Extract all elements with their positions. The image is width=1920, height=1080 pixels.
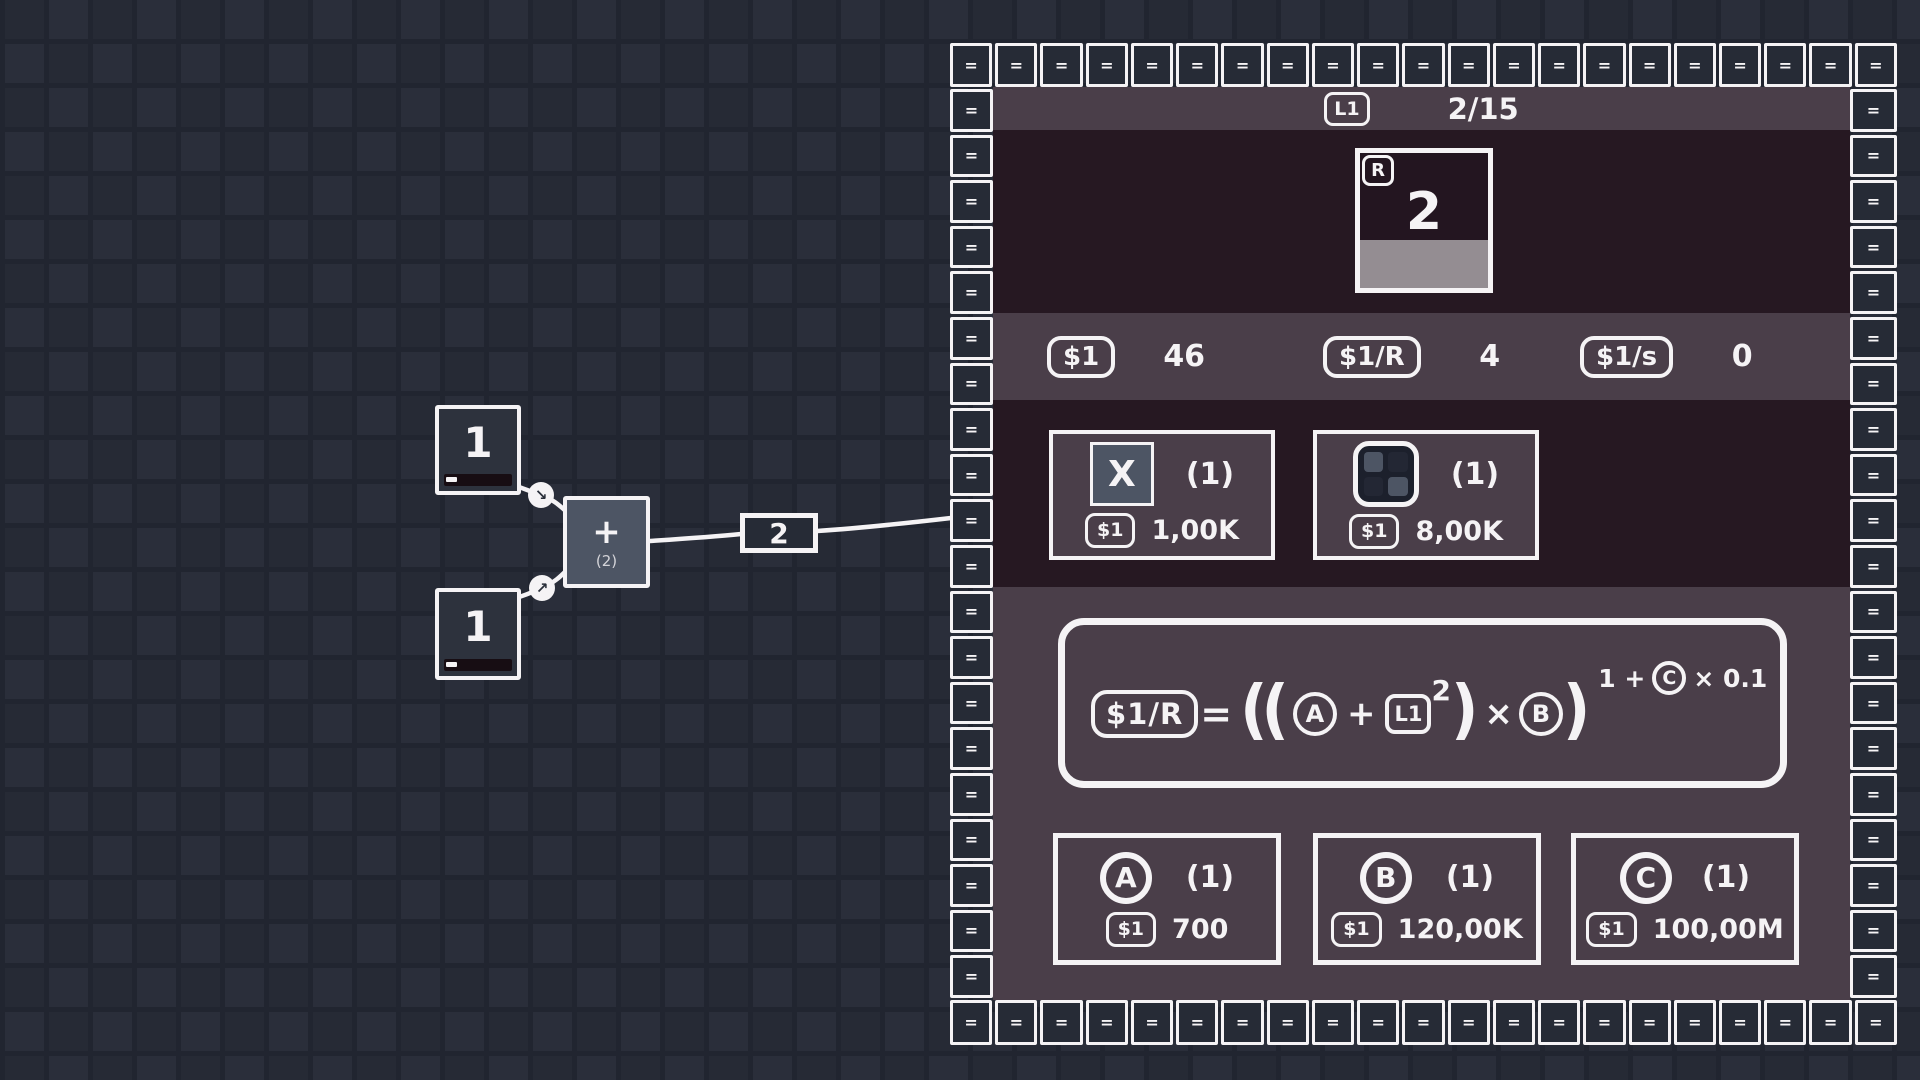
panel-border-tile: = [1850, 363, 1897, 406]
panel-border-tile: = [1850, 955, 1897, 998]
grid-cell [1388, 477, 1408, 497]
panel-border-tile: = [950, 910, 993, 953]
formula-var-b: B [1519, 692, 1563, 736]
panel-border-tile: = [1448, 1000, 1490, 1045]
panel-border-tile: = [1850, 89, 1897, 132]
panel-border-tile: = [1764, 1000, 1806, 1045]
input-node-1-progress-fill [446, 477, 457, 482]
upgrade-panel: ===================== ==================… [950, 43, 1897, 1045]
panel-border-tile: = [950, 317, 993, 360]
input-node-1-progress-bar [444, 474, 512, 486]
panel-border-tile: = [950, 727, 993, 770]
upgrade-grid-count: (1) [1451, 457, 1499, 492]
input-node-2[interactable]: 1 [435, 588, 521, 680]
panel-border-tile: = [1402, 43, 1444, 87]
buy-a-count: (1) [1186, 860, 1234, 895]
buy-a-currency-badge: $1 [1106, 912, 1156, 947]
upgrade-x-button[interactable]: X (1) $1 1,00K [1049, 430, 1275, 560]
upgrade-grid-currency-badge: $1 [1349, 514, 1399, 549]
panel-border-tile: = [1176, 1000, 1218, 1045]
panel-border-tile: = [995, 43, 1037, 87]
formula-close-paren-1: ) [1451, 677, 1478, 750]
panel-border-tile: = [950, 454, 993, 497]
panel-border-tile: = [1086, 43, 1128, 87]
panel-border-tile: = [950, 363, 993, 406]
input-node-2-progress-bar [444, 659, 512, 671]
upgrade-x-count: (1) [1186, 457, 1234, 492]
wire-operator-to-label [650, 534, 741, 541]
panel-border-tile: = [995, 1000, 1037, 1045]
x-icon: X [1090, 442, 1154, 506]
panel-border-tile: = [950, 43, 992, 87]
grid-cell [1364, 477, 1384, 497]
formula-exponent-group: 1 + C × 0.1 [1598, 661, 1767, 695]
formula-times: × [1484, 694, 1513, 734]
buy-c-currency-badge: $1 [1586, 912, 1636, 947]
resource-card[interactable]: R 2 [1355, 148, 1493, 293]
panel-border-tile: = [1583, 43, 1625, 87]
grid-cell [1388, 452, 1408, 472]
panel-border-tile: = [1131, 43, 1173, 87]
panel-border-tile: = [1040, 43, 1082, 87]
input-node-1-value: 1 [463, 418, 492, 483]
panel-border-tile: = [1850, 910, 1897, 953]
panel-border-tile: = [1448, 43, 1490, 87]
level-progress: 2/15 [1448, 92, 1519, 126]
buy-c-cost: 100,00M [1653, 914, 1784, 945]
buy-b-currency-badge: $1 [1331, 912, 1381, 947]
panel-border-tile: = [950, 773, 993, 816]
panel-border-tile: = [1674, 1000, 1716, 1045]
panel-border-tile: = [1850, 317, 1897, 360]
operator-annotation: (2) [596, 552, 617, 570]
panel-border-tile: = [1809, 43, 1851, 87]
formula-panel: $1/R = (( A + L1 2 ) × B ) 1 + C × 0.1 [1058, 618, 1787, 788]
input-node-2-progress-fill [446, 662, 457, 667]
panel-border-tile: = [950, 682, 993, 725]
panel-border-tile: = [1267, 1000, 1309, 1045]
formula-equals: = [1200, 692, 1232, 736]
grid-cell [1364, 452, 1384, 472]
upgrade-x-currency-badge: $1 [1085, 513, 1135, 548]
panel-border-tile: = [1493, 43, 1535, 87]
panel-border-tile: = [1357, 1000, 1399, 1045]
money-per-second-value: 0 [1711, 339, 1773, 374]
money-unit-badge: $1 [1047, 336, 1115, 378]
input-node-1[interactable]: 1 [435, 405, 521, 495]
panel-border-tile: = [1583, 1000, 1625, 1045]
game-canvas: { "colors":{ "background":"#242834", "pa… [0, 0, 1920, 1080]
panel-border-tile: = [950, 545, 993, 588]
panel-border-tile: = [1221, 1000, 1263, 1045]
buy-b-cost: 120,00K [1398, 914, 1523, 945]
arrow-down-right-icon[interactable]: ↘ [528, 482, 554, 508]
a-circle-icon: A [1100, 852, 1152, 904]
formula-plus: + [1347, 694, 1376, 734]
panel-border-tile: = [950, 408, 993, 451]
b-circle-icon: B [1360, 852, 1412, 904]
panel-border-tile: = [950, 955, 993, 998]
upgrade-grid-button[interactable]: (1) $1 8,00K [1313, 430, 1539, 560]
panel-border-tile: = [1850, 636, 1897, 679]
buy-a-cost: 700 [1172, 914, 1228, 945]
panel-border-tile: = [950, 89, 993, 132]
wire-label-to-panel [817, 518, 951, 531]
buy-b-button[interactable]: B (1) $1 120,00K [1313, 833, 1541, 965]
panel-border-tile: = [1629, 43, 1671, 87]
formula-result-badge: $1/R [1091, 690, 1198, 738]
panel-border-tile: = [1086, 1000, 1128, 1045]
panel-border-tile: = [1850, 819, 1897, 862]
panel-border-tile: = [1312, 43, 1354, 87]
plus-symbol: + [592, 515, 621, 549]
panel-border-tile: = [1538, 1000, 1580, 1045]
level-badge: L1 [1324, 92, 1369, 126]
panel-border-tile: = [1176, 43, 1218, 87]
buy-a-button[interactable]: A (1) $1 700 [1053, 833, 1281, 965]
card-section: R 2 [993, 130, 1850, 313]
panel-border-tile: = [1538, 43, 1580, 87]
formula-square-exponent: 2 [1431, 674, 1450, 707]
panel-border-tile: = [1850, 408, 1897, 451]
upgrades-section: X (1) $1 1,00K (1) [993, 400, 1850, 587]
panel-border-tile: = [1850, 454, 1897, 497]
panel-border-tile: = [1850, 682, 1897, 725]
panel-border-tile: = [1850, 773, 1897, 816]
panel-border-tile: = [1357, 43, 1399, 87]
formula-exponent-prefix: 1 + [1598, 664, 1645, 693]
panel-border-tile: = [1312, 1000, 1354, 1045]
resource-card-value: 2 [1360, 186, 1488, 238]
stat-money: $1 46 [1047, 336, 1215, 378]
panel-border-tile: = [1040, 1000, 1082, 1045]
panel-border-bottom: ===================== [950, 1000, 1897, 1045]
panel-border-tile: = [950, 591, 993, 634]
panel-border-tile: = [950, 226, 993, 269]
panel-content: L1 2/15 R 2 $1 46 $1/R 4 $1/s 0 [993, 87, 1850, 1000]
panel-border-tile: = [950, 636, 993, 679]
panel-border-right: ==================== [1850, 89, 1897, 998]
panel-border-tile: = [1850, 864, 1897, 907]
panel-border-tile: = [950, 819, 993, 862]
panel-border-tile: = [1850, 727, 1897, 770]
upgrade-grid-cost: 8,00K [1415, 516, 1503, 547]
stat-money-per-run: $1/R 4 [1323, 336, 1521, 378]
formula-exponent-suffix: × 0.1 [1693, 664, 1767, 693]
panel-border-tile: = [1850, 591, 1897, 634]
input-node-2-value: 1 [463, 602, 492, 667]
formula-var-a: A [1293, 692, 1337, 736]
buy-c-button[interactable]: C (1) $1 100,00M [1571, 833, 1799, 965]
panel-border-tile: = [1850, 226, 1897, 269]
upgrade-x-cost: 1,00K [1151, 515, 1239, 546]
panel-border-tile: = [1629, 1000, 1671, 1045]
panel-border-tile: = [950, 135, 993, 178]
panel-border-tile: = [1850, 499, 1897, 542]
buy-c-count: (1) [1702, 860, 1750, 895]
operator-node-plus[interactable]: + (2) [563, 496, 650, 588]
formula-close-paren-2: ) [1563, 677, 1590, 750]
panel-border-tile: = [1131, 1000, 1173, 1045]
c-circle-icon: C [1620, 852, 1672, 904]
stats-row: $1 46 $1/R 4 $1/s 0 [993, 313, 1850, 400]
formula-exponent-var-c: C [1652, 661, 1686, 695]
panel-border-tile: = [1719, 43, 1761, 87]
panel-border-tile: = [1674, 43, 1716, 87]
panel-header: L1 2/15 [993, 87, 1850, 130]
resource-card-progress [1360, 240, 1488, 288]
panel-border-tile: = [1764, 43, 1806, 87]
panel-border-tile: = [1809, 1000, 1851, 1045]
panel-border-tile: = [1850, 135, 1897, 178]
panel-border-tile: = [1719, 1000, 1761, 1045]
panel-border-tile: = [1855, 1000, 1897, 1045]
panel-border-tile: = [950, 180, 993, 223]
money-value: 46 [1153, 339, 1215, 374]
money-per-run-unit-badge: $1/R [1323, 336, 1421, 378]
panel-border-tile: = [1493, 1000, 1535, 1045]
panel-border-tile: = [950, 1000, 992, 1045]
panel-border-tile: = [950, 864, 993, 907]
panel-border-tile: = [950, 271, 993, 314]
panel-border-top: ===================== [950, 43, 1897, 87]
resource-badge: R [1362, 155, 1394, 186]
panel-border-left: ==================== [950, 89, 993, 998]
stat-money-per-second: $1/s 0 [1580, 336, 1773, 378]
panel-border-tile: = [1221, 43, 1263, 87]
money-per-second-unit-badge: $1/s [1580, 336, 1673, 378]
formula-open-parens: (( [1240, 677, 1283, 750]
panel-border-tile: = [950, 499, 993, 542]
panel-border-tile: = [1850, 180, 1897, 223]
panel-border-tile: = [1267, 43, 1309, 87]
panel-border-tile: = [1850, 545, 1897, 588]
buy-b-count: (1) [1446, 860, 1494, 895]
edge-value-label: 2 [740, 513, 818, 553]
panel-border-tile: = [1402, 1000, 1444, 1045]
panel-border-tile: = [1855, 43, 1897, 87]
formula-var-l1: L1 [1385, 694, 1431, 734]
panel-border-tile: = [1850, 271, 1897, 314]
arrow-up-right-icon[interactable]: ↗ [529, 575, 555, 601]
grid-icon [1353, 441, 1419, 507]
bottom-section: $1/R = (( A + L1 2 ) × B ) 1 + C × 0.1 [993, 587, 1850, 1000]
money-per-run-value: 4 [1459, 339, 1521, 374]
